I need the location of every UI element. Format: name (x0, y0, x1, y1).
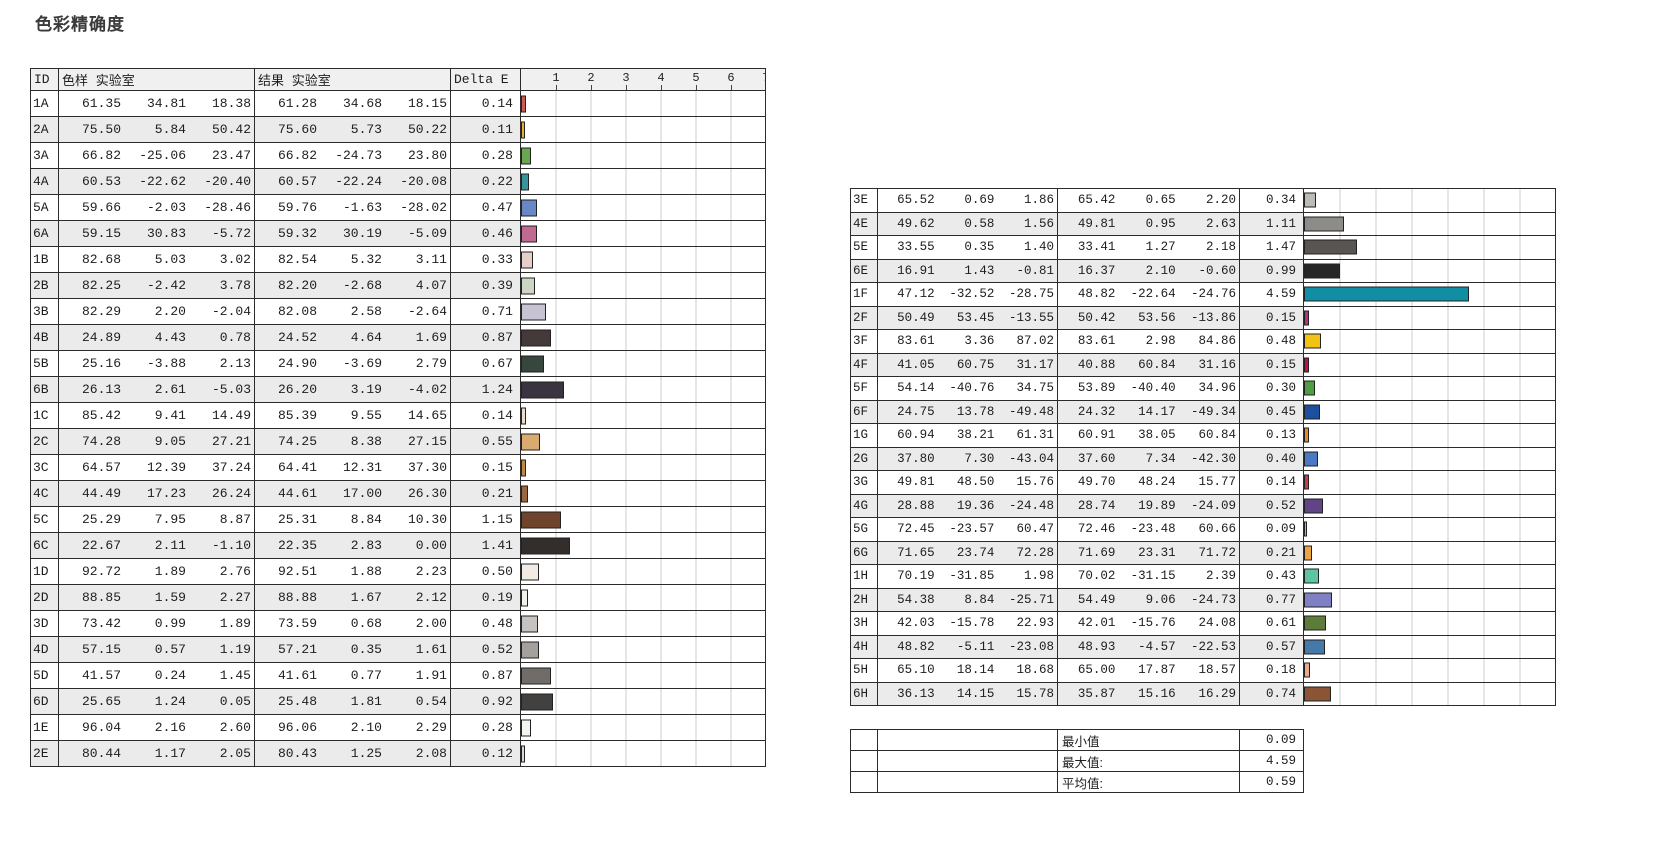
sample-lab-cell-b: 1.45 (189, 668, 254, 683)
result-lab-cell: 22.352.830.00 (255, 533, 451, 559)
result-lab-cell-values: 80.431.252.08 (255, 746, 450, 761)
result-lab-cell-a: -22.24 (320, 174, 385, 189)
patch-id-cell: 4G (851, 494, 878, 518)
summary-empty-id-cell (851, 772, 878, 793)
result-lab-cell-values: 65.0017.8718.57 (1058, 663, 1239, 677)
delta-e-bar-cell (521, 663, 766, 689)
delta-e-cell: 0.21 (1240, 541, 1304, 565)
sample-lab-cell-l: 24.89 (59, 330, 124, 345)
sample-lab-cell-values: 44.4917.2326.24 (59, 486, 254, 501)
result-lab-cell-b: 2.29 (385, 720, 450, 735)
result-lab-cell-values: 54.499.06-24.73 (1058, 593, 1239, 607)
result-lab-cell-l: 80.43 (255, 746, 320, 761)
result-lab-cell-a: 0.35 (320, 642, 385, 657)
result-lab-cell: 40.8860.8431.16 (1058, 353, 1240, 377)
sample-lab-cell: 22.672.11-1.10 (59, 533, 255, 559)
patch-id-cell: 4A (31, 169, 59, 195)
result-lab-cell-l: 66.82 (255, 148, 320, 163)
table-row: 1D92.721.892.7692.511.882.230.50 (31, 559, 766, 585)
summary-value-cell: 4.59 (1240, 751, 1304, 772)
result-lab-cell-a: 2.83 (320, 538, 385, 553)
sample-lab-cell-b: -5.03 (189, 382, 254, 397)
sample-lab-cell-a: 2.61 (124, 382, 189, 397)
sample-lab-cell-a: 8.84 (938, 593, 998, 607)
result-lab-cell-l: 53.89 (1058, 381, 1118, 395)
table-row: 6C22.672.11-1.1022.352.830.001.41 (31, 533, 766, 559)
result-lab-cell-l: 64.41 (255, 460, 320, 475)
table-row: 3F83.613.3687.0283.612.9884.860.48 (851, 330, 1556, 354)
sample-lab-cell-l: 59.66 (59, 200, 124, 215)
result-lab-cell-a: -31.15 (1118, 569, 1178, 583)
sample-lab-cell: 60.9438.2161.31 (878, 424, 1058, 448)
delta-e-bar (1304, 592, 1332, 607)
delta-e-bar (521, 329, 551, 346)
header-id: ID (31, 69, 59, 91)
table-row: 1C85.429.4114.4985.399.5514.650.14 (31, 403, 766, 429)
patch-id-cell: 4E (851, 212, 878, 236)
table-row: 3C64.5712.3937.2464.4112.3137.300.15 (31, 455, 766, 481)
result-lab-cell-b: 2.39 (1179, 569, 1239, 583)
result-lab-cell-a: 23.31 (1118, 546, 1178, 560)
table-row: 4E49.620.581.5649.810.952.631.11 (851, 212, 1556, 236)
sample-lab-cell: 44.4917.2326.24 (59, 481, 255, 507)
result-lab-cell-l: 61.28 (255, 96, 320, 111)
result-lab-cell-b: 34.96 (1179, 381, 1239, 395)
scale-tick-mark (661, 85, 662, 90)
delta-e-cell: 1.41 (451, 533, 521, 559)
sample-lab-cell: 41.0560.7531.17 (878, 353, 1058, 377)
result-lab-cell: 33.411.272.18 (1058, 236, 1240, 260)
result-lab-cell-b: 26.30 (385, 486, 450, 501)
result-lab-cell-a: 17.87 (1118, 663, 1178, 677)
sample-lab-cell-values: 74.289.0527.21 (59, 434, 254, 449)
result-lab-cell-values: 59.3230.19-5.09 (255, 226, 450, 241)
sample-lab-cell-l: 73.42 (59, 616, 124, 631)
sample-lab-cell-b: -23.08 (997, 640, 1057, 654)
result-lab-cell-a: 8.38 (320, 434, 385, 449)
sample-lab-cell: 16.911.43-0.81 (878, 259, 1058, 283)
delta-e-bar (521, 589, 528, 606)
sample-lab-cell-l: 26.13 (59, 382, 124, 397)
patch-id-cell: 5E (851, 236, 878, 260)
result-lab-cell-values: 66.82-24.7323.80 (255, 148, 450, 163)
sample-lab-cell-a: -3.88 (124, 356, 189, 371)
result-lab-cell-b: -5.09 (385, 226, 450, 241)
sample-lab-cell-b: 61.31 (997, 428, 1057, 442)
sample-lab-cell: 92.721.892.76 (59, 559, 255, 585)
sample-lab-cell-values: 54.14-40.7634.75 (878, 381, 1057, 395)
delta-e-bar-cell (521, 559, 766, 585)
delta-e-cell: 0.14 (451, 403, 521, 429)
sample-lab-cell-a: 7.95 (124, 512, 189, 527)
sample-lab-cell-b: -2.04 (189, 304, 254, 319)
delta-e-bar (1304, 310, 1309, 325)
result-lab-cell-values: 96.062.102.29 (255, 720, 450, 735)
sample-lab-cell-b: 37.24 (189, 460, 254, 475)
scale-tick-label: 6 (727, 71, 734, 85)
result-lab-cell-l: 59.32 (255, 226, 320, 241)
patch-id-cell: 1B (31, 247, 59, 273)
summary-empty-id-cell (851, 751, 878, 772)
sample-lab-cell-b: -43.04 (997, 452, 1057, 466)
sample-lab-cell-b: 22.93 (997, 616, 1057, 630)
sample-lab-cell: 54.388.84-25.71 (878, 588, 1058, 612)
delta-e-bar (1304, 357, 1309, 372)
sample-lab-cell-a: 1.17 (124, 746, 189, 761)
result-lab-cell-a: 19.89 (1118, 499, 1178, 513)
delta-e-bar (521, 485, 528, 502)
delta-e-bar (521, 641, 539, 658)
sample-lab-cell-l: 88.85 (59, 590, 124, 605)
table-row: 1G60.9438.2161.3160.9138.0560.840.13 (851, 424, 1556, 448)
delta-e-cell: 0.52 (1240, 494, 1304, 518)
sample-lab-cell-b: 3.02 (189, 252, 254, 267)
result-lab-cell: 82.20-2.684.07 (255, 273, 451, 299)
result-lab-cell-l: 65.00 (1058, 663, 1118, 677)
delta-e-bar-cell (521, 325, 766, 351)
delta-e-cell: 0.30 (1240, 377, 1304, 401)
sample-lab-cell-b: 14.49 (189, 408, 254, 423)
result-lab-cell: 24.90-3.692.79 (255, 351, 451, 377)
sample-lab-cell-l: 92.72 (59, 564, 124, 579)
patch-id-cell: 1C (31, 403, 59, 429)
result-lab-cell-l: 41.61 (255, 668, 320, 683)
sample-lab-cell-l: 96.04 (59, 720, 124, 735)
delta-e-bar (521, 277, 535, 294)
sample-lab-cell-l: 49.62 (878, 217, 938, 231)
sample-lab-cell: 70.19-31.851.98 (878, 565, 1058, 589)
delta-e-bar (521, 121, 525, 138)
patch-id-cell: 3F (851, 330, 878, 354)
delta-e-bar-cell (521, 169, 766, 195)
result-lab-cell-a: -22.64 (1118, 287, 1178, 301)
result-lab-cell-a: 0.65 (1118, 193, 1178, 207)
sample-lab-cell-l: 44.49 (59, 486, 124, 501)
sample-lab-cell-b: 0.05 (189, 694, 254, 709)
sample-lab-cell: 59.1530.83-5.72 (59, 221, 255, 247)
delta-e-bar-cell (521, 91, 766, 117)
patch-id-cell: 1E (31, 715, 59, 741)
result-lab-cell-l: 96.06 (255, 720, 320, 735)
sample-lab-cell-values: 59.66-2.03-28.46 (59, 200, 254, 215)
sample-lab-cell: 72.45-23.5760.47 (878, 518, 1058, 542)
result-lab-cell-a: -24.73 (320, 148, 385, 163)
result-lab-cell: 25.318.8410.30 (255, 507, 451, 533)
delta-e-cell: 0.77 (1240, 588, 1304, 612)
delta-e-bar (1304, 240, 1357, 255)
sample-lab-cell: 33.550.351.40 (878, 236, 1058, 260)
table-row: 2A75.505.8450.4275.605.7350.220.11 (31, 117, 766, 143)
result-lab-cell: 50.4253.56-13.86 (1058, 306, 1240, 330)
result-lab-cell-values: 44.6117.0026.30 (255, 486, 450, 501)
patch-id-cell: 6F (851, 400, 878, 424)
table-row: 6G71.6523.7472.2871.6923.3171.720.21 (851, 541, 1556, 565)
sample-lab-cell-values: 85.429.4114.49 (59, 408, 254, 423)
sample-lab-cell-b: 15.78 (997, 687, 1057, 701)
sample-lab-cell-values: 25.16-3.882.13 (59, 356, 254, 371)
result-lab-cell-b: 50.22 (385, 122, 450, 137)
delta-e-bar (521, 511, 561, 528)
delta-e-bar (521, 537, 570, 554)
result-lab-cell-l: 65.42 (1058, 193, 1118, 207)
delta-e-cell: 1.47 (1240, 236, 1304, 260)
delta-e-cell: 0.99 (1240, 259, 1304, 283)
table-row: 2F50.4953.45-13.5550.4253.56-13.860.15 (851, 306, 1556, 330)
sample-lab-cell-a: 0.99 (124, 616, 189, 631)
result-lab-cell-l: 28.74 (1058, 499, 1118, 513)
sample-lab-cell-values: 57.150.571.19 (59, 642, 254, 657)
sample-lab-cell-b: 18.38 (189, 96, 254, 111)
result-lab-cell-b: 18.15 (385, 96, 450, 111)
delta-e-cell: 0.61 (1240, 612, 1304, 636)
result-lab-cell-l: 16.37 (1058, 264, 1118, 278)
delta-e-bar-cell (1304, 565, 1556, 589)
sample-lab-cell-a: 5.84 (124, 122, 189, 137)
sample-lab-cell-values: 92.721.892.76 (59, 564, 254, 579)
delta-e-bar-cell (1304, 471, 1556, 495)
result-lab-cell: 71.6923.3171.72 (1058, 541, 1240, 565)
result-lab-cell-l: 25.48 (255, 694, 320, 709)
result-lab-cell: 73.590.682.00 (255, 611, 451, 637)
sample-lab-cell-a: 34.81 (124, 96, 189, 111)
result-lab-cell-a: 2.58 (320, 304, 385, 319)
sample-lab-cell-a: 60.75 (938, 358, 998, 372)
result-lab-cell-a: 0.68 (320, 616, 385, 631)
delta-e-bar-cell (521, 143, 766, 169)
result-lab-cell: 24.3214.17-49.34 (1058, 400, 1240, 424)
table-row: 1E96.042.162.6096.062.102.290.28 (31, 715, 766, 741)
table-row: 5A59.66-2.03-28.4659.76-1.63-28.020.47 (31, 195, 766, 221)
delta-e-cell: 0.09 (1240, 518, 1304, 542)
page-title: 色彩精确度 (35, 10, 125, 35)
sample-lab-cell: 50.4953.45-13.55 (878, 306, 1058, 330)
result-lab-cell-b: 84.86 (1179, 334, 1239, 348)
delta-e-cell: 0.92 (451, 689, 521, 715)
sample-lab-cell-b: 2.13 (189, 356, 254, 371)
sample-lab-cell: 25.651.240.05 (59, 689, 255, 715)
result-lab-cell-a: 15.16 (1118, 687, 1178, 701)
sample-lab-cell-l: 54.14 (878, 381, 938, 395)
delta-e-bar (1304, 545, 1312, 560)
result-lab-cell-values: 75.605.7350.22 (255, 122, 450, 137)
patch-id-cell: 1D (31, 559, 59, 585)
table-row: 1H70.19-31.851.9870.02-31.152.390.43 (851, 565, 1556, 589)
result-lab-cell: 41.610.771.91 (255, 663, 451, 689)
table-row: 4B24.894.430.7824.524.641.690.87 (31, 325, 766, 351)
result-lab-cell-a: 53.56 (1118, 311, 1178, 325)
sample-lab-cell-l: 25.16 (59, 356, 124, 371)
delta-e-bar-cell (521, 403, 766, 429)
delta-e-cell: 1.11 (1240, 212, 1304, 236)
result-lab-cell: 82.082.58-2.64 (255, 299, 451, 325)
delta-e-bar (521, 433, 540, 450)
result-lab-cell-l: 74.25 (255, 434, 320, 449)
patch-id-cell: 3D (31, 611, 59, 637)
scale-tick-mark (731, 85, 732, 90)
scale-tick-label: 4 (657, 71, 664, 85)
table-row: 4D57.150.571.1957.210.351.610.52 (31, 637, 766, 663)
sample-lab-cell-l: 41.05 (878, 358, 938, 372)
result-lab-cell-values: 25.481.810.54 (255, 694, 450, 709)
result-lab-cell-l: 49.70 (1058, 475, 1118, 489)
sample-lab-cell-values: 82.25-2.423.78 (59, 278, 254, 293)
sample-lab-cell-b: 2.27 (189, 590, 254, 605)
table-row: 6D25.651.240.0525.481.810.540.92 (31, 689, 766, 715)
sample-lab-cell-a: 23.74 (938, 546, 998, 560)
table-row: 4H48.82-5.11-23.0848.93-4.57-22.530.57 (851, 635, 1556, 659)
delta-e-bar (521, 355, 544, 372)
delta-e-bar-cell (1304, 377, 1556, 401)
result-lab-cell-a: 14.17 (1118, 405, 1178, 419)
result-lab-cell: 37.607.34-42.30 (1058, 447, 1240, 471)
sample-lab-cell: 82.685.033.02 (59, 247, 255, 273)
table-row: 3D73.420.991.8973.590.682.000.48 (31, 611, 766, 637)
sample-lab-cell: 36.1314.1515.78 (878, 682, 1058, 706)
delta-e-cell: 0.45 (1240, 400, 1304, 424)
delta-e-bar (521, 199, 537, 216)
delta-e-bar-cell (521, 299, 766, 325)
sample-lab-cell-a: -25.06 (124, 148, 189, 163)
delta-e-bar (521, 225, 537, 242)
delta-e-bar-cell (521, 377, 766, 403)
patch-id-cell: 3H (851, 612, 878, 636)
result-lab-cell: 75.605.7350.22 (255, 117, 451, 143)
result-lab-cell-values: 57.210.351.61 (255, 642, 450, 657)
sample-lab-cell: 71.6523.7472.28 (878, 541, 1058, 565)
scale-tick-mark (591, 85, 592, 90)
sample-lab-cell-l: 25.65 (59, 694, 124, 709)
result-lab-cell: 70.02-31.152.39 (1058, 565, 1240, 589)
sample-lab-cell-a: 12.39 (124, 460, 189, 475)
sample-lab-cell-l: 65.52 (878, 193, 938, 207)
patch-id-cell: 1G (851, 424, 878, 448)
delta-e-bar (521, 95, 526, 112)
result-lab-cell-b: 60.66 (1179, 522, 1239, 536)
summary-empty-sample-cell (878, 772, 1058, 793)
result-lab-cell-a: 9.55 (320, 408, 385, 423)
table-row: 2G37.807.30-43.0437.607.34-42.300.40 (851, 447, 1556, 471)
result-lab-cell-b: -24.76 (1179, 287, 1239, 301)
summary-row: 最大值:4.59 (851, 751, 1304, 772)
sample-lab-cell-b: 31.17 (997, 358, 1057, 372)
sample-lab-cell-l: 64.57 (59, 460, 124, 475)
sample-lab-cell-values: 25.297.958.87 (59, 512, 254, 527)
result-lab-cell-values: 53.89-40.4034.96 (1058, 381, 1239, 395)
delta-e-cell: 0.13 (1240, 424, 1304, 448)
result-lab-cell-b: 2.18 (1179, 240, 1239, 254)
sample-lab-cell-values: 83.613.3687.02 (878, 334, 1057, 348)
delta-e-bar-cell (1304, 541, 1556, 565)
sample-lab-cell-values: 88.851.592.27 (59, 590, 254, 605)
delta-e-bar-cell (1304, 259, 1556, 283)
result-lab-cell-b: 2.23 (385, 564, 450, 579)
sample-lab-cell-a: 17.23 (124, 486, 189, 501)
table-row: 5C25.297.958.8725.318.8410.301.15 (31, 507, 766, 533)
result-lab-cell-values: 33.411.272.18 (1058, 240, 1239, 254)
sample-lab-cell-values: 28.8819.36-24.48 (878, 499, 1057, 513)
result-lab-cell-l: 25.31 (255, 512, 320, 527)
result-lab-cell-a: 7.34 (1118, 452, 1178, 466)
delta-e-cell: 0.74 (1240, 682, 1304, 706)
result-lab-cell-a: 48.24 (1118, 475, 1178, 489)
sample-lab-cell-values: 41.0560.7531.17 (878, 358, 1057, 372)
delta-e-bar (521, 173, 529, 190)
sample-lab-cell-values: 50.4953.45-13.55 (878, 311, 1057, 325)
patch-id-cell: 6C (31, 533, 59, 559)
sample-lab-cell-l: 42.03 (878, 616, 938, 630)
header-sample-lab: 色样 实验室 (59, 69, 255, 91)
result-lab-cell: 26.203.19-4.02 (255, 377, 451, 403)
result-lab-cell-l: 48.93 (1058, 640, 1118, 654)
result-lab-cell-values: 28.7419.89-24.09 (1058, 499, 1239, 513)
sample-lab-cell-l: 59.15 (59, 226, 124, 241)
delta-e-bar-cell (1304, 447, 1556, 471)
sample-lab-cell-values: 75.505.8450.42 (59, 122, 254, 137)
delta-e-bar-cell (1304, 283, 1556, 307)
sample-lab-cell-l: 50.49 (878, 311, 938, 325)
delta-e-bar-cell (1304, 353, 1556, 377)
result-lab-cell-a: -40.40 (1118, 381, 1178, 395)
sample-lab-cell-a: 1.43 (938, 264, 998, 278)
result-lab-cell-b: -13.86 (1179, 311, 1239, 325)
table-row: 2H54.388.84-25.7154.499.06-24.730.77 (851, 588, 1556, 612)
sample-lab-cell-b: 3.78 (189, 278, 254, 293)
delta-e-bar (1304, 569, 1319, 584)
table-row: 1B82.685.033.0282.545.323.110.33 (31, 247, 766, 273)
summary-empty-id-cell (851, 730, 878, 751)
result-lab-cell-values: 42.01-15.7624.08 (1058, 616, 1239, 630)
delta-e-bar-cell (1304, 682, 1556, 706)
patch-id-cell: 4F (851, 353, 878, 377)
delta-e-bar-cell (1304, 212, 1556, 236)
result-lab-cell-values: 49.810.952.63 (1058, 217, 1239, 231)
result-lab-cell-l: 82.54 (255, 252, 320, 267)
result-lab-cell-values: 85.399.5514.65 (255, 408, 450, 423)
delta-e-bar (1304, 475, 1309, 490)
result-lab-cell-values: 37.607.34-42.30 (1058, 452, 1239, 466)
delta-e-cell: 0.11 (451, 117, 521, 143)
result-lab-cell-b: 2.20 (1179, 193, 1239, 207)
delta-e-cell: 1.15 (451, 507, 521, 533)
result-lab-cell-b: 0.00 (385, 538, 450, 553)
table-row: 2D88.851.592.2788.881.672.120.19 (31, 585, 766, 611)
sample-lab-cell-values: 66.82-25.0623.47 (59, 148, 254, 163)
table-row: 5G72.45-23.5760.4772.46-23.4860.660.09 (851, 518, 1556, 542)
table-row: 5H65.1018.1418.6865.0017.8718.570.18 (851, 659, 1556, 683)
sample-lab-cell: 64.5712.3937.24 (59, 455, 255, 481)
delta-e-scale-header: 1234567 (521, 69, 766, 91)
delta-e-cell: 0.33 (451, 247, 521, 273)
patch-id-cell: 2A (31, 117, 59, 143)
sample-lab-cell-a: 3.36 (938, 334, 998, 348)
summary-value-cell: 0.09 (1240, 730, 1304, 751)
result-lab-cell: 57.210.351.61 (255, 637, 451, 663)
delta-e-cell: 0.14 (1240, 471, 1304, 495)
result-lab-cell-a: 2.98 (1118, 334, 1178, 348)
sample-lab-cell-values: 37.807.30-43.04 (878, 452, 1057, 466)
sample-lab-cell-b: -24.48 (997, 499, 1057, 513)
sample-lab-cell-l: 28.88 (878, 499, 938, 513)
result-lab-cell: 49.7048.2415.77 (1058, 471, 1240, 495)
delta-e-bar-cell (1304, 330, 1556, 354)
sample-lab-cell-l: 83.61 (878, 334, 938, 348)
result-lab-cell-b: -20.08 (385, 174, 450, 189)
sample-lab-cell-l: 82.29 (59, 304, 124, 319)
delta-e-bar (1304, 216, 1344, 231)
result-lab-cell-a: 30.19 (320, 226, 385, 241)
result-lab-cell-l: 49.81 (1058, 217, 1118, 231)
sample-lab-cell: 65.520.691.86 (878, 189, 1058, 213)
